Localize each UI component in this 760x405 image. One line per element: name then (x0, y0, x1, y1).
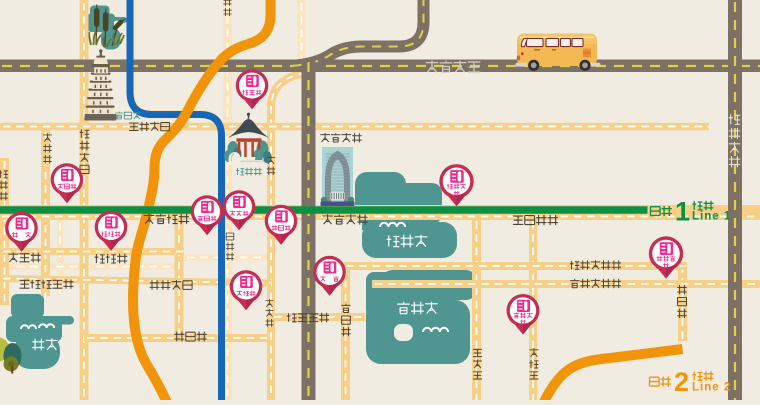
svg-text:Line 2: Line 2 (692, 382, 731, 394)
svg-text:1: 1 (675, 197, 690, 227)
svg-text:2: 2 (674, 367, 689, 397)
svg-text:Line 1: Line 1 (692, 211, 731, 223)
